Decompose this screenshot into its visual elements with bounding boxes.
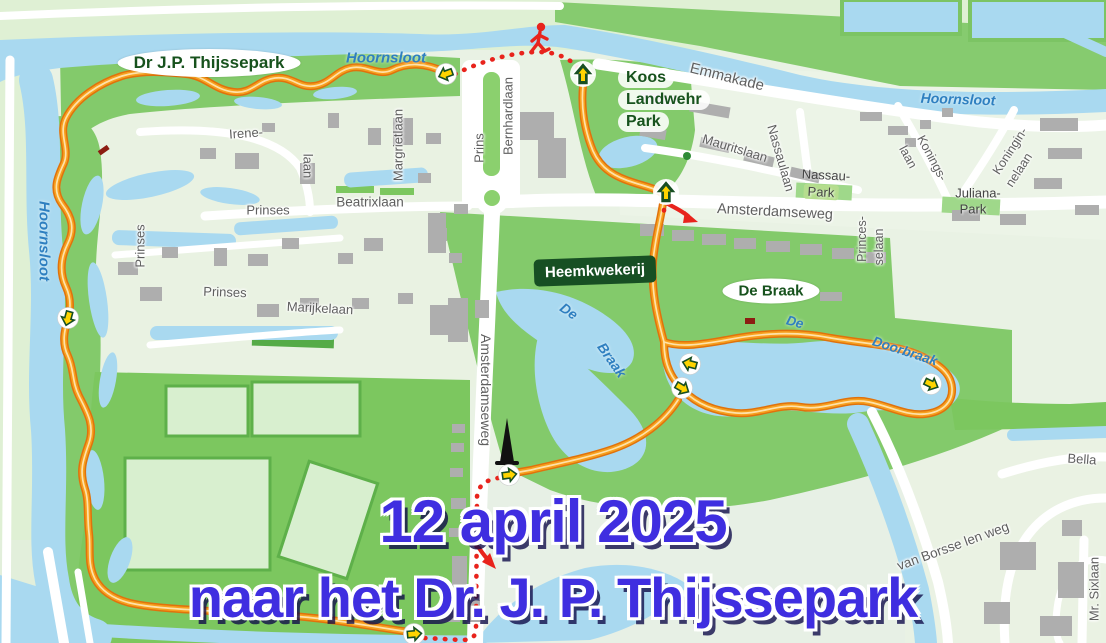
street-label-irene-1: Irene- [229, 124, 264, 141]
park-label-nassau-park-2: Park [803, 184, 838, 201]
heemkwekerij-label: Heemkwekerij [534, 255, 657, 286]
water-label-hoornsloot-left: Hoornsloot [36, 201, 53, 281]
street-label-beatrixlaan: Beatrixlaan [336, 195, 404, 210]
start-marker-icon [570, 61, 596, 87]
route-map: Dr J.P. Thijssepark Koos Landwehr Park D… [0, 0, 1106, 643]
street-label-amsterdamseweg-v: Amsterdamseweg [478, 334, 494, 446]
street-label-margrietlaan: Margrietlaan [391, 109, 406, 181]
water-label-hoornsloot-top: Hoornsloot [346, 50, 426, 67]
street-label-princesselaan-1: Princes- [855, 216, 869, 262]
street-label-prinses-west: Prinses [133, 224, 148, 267]
park-label-nassau-park-1: Nassau- [801, 166, 850, 184]
bench-icon [745, 318, 755, 324]
start-marker-icon [653, 179, 679, 205]
park-label-koos-line3: Park [618, 112, 669, 132]
street-label-bella: Bella [1067, 451, 1097, 468]
tree-icon [683, 152, 691, 160]
park-label-juliana-park-2: Park [960, 202, 987, 217]
street-label-prinses-north: Prinses [246, 203, 289, 218]
street-label-bernhardlaan: Bernhardlaan [501, 77, 516, 155]
water-label-hoornsloot-right: Hoornsloot [920, 90, 995, 109]
park-label-koos-line2: Landwehr [618, 90, 710, 110]
event-date-text: 12 april 2025 [0, 492, 1106, 552]
street-label-prins: Prins [472, 133, 487, 163]
park-label-de-braak: De Braak [722, 279, 819, 304]
park-label-koos-line1: Koos [618, 68, 674, 88]
street-label-irene-2: laan [301, 154, 316, 179]
park-label-juliana-park-1: Juliana- [955, 186, 1001, 201]
street-label-princesselaan-2: selaan [872, 229, 886, 266]
event-destination-text: naar het Dr. J. P. Thijssepark [0, 570, 1106, 626]
street-label-prinses-mid: Prinses [203, 284, 247, 301]
park-label-thijssepark: Dr J.P. Thijssepark [118, 49, 301, 77]
